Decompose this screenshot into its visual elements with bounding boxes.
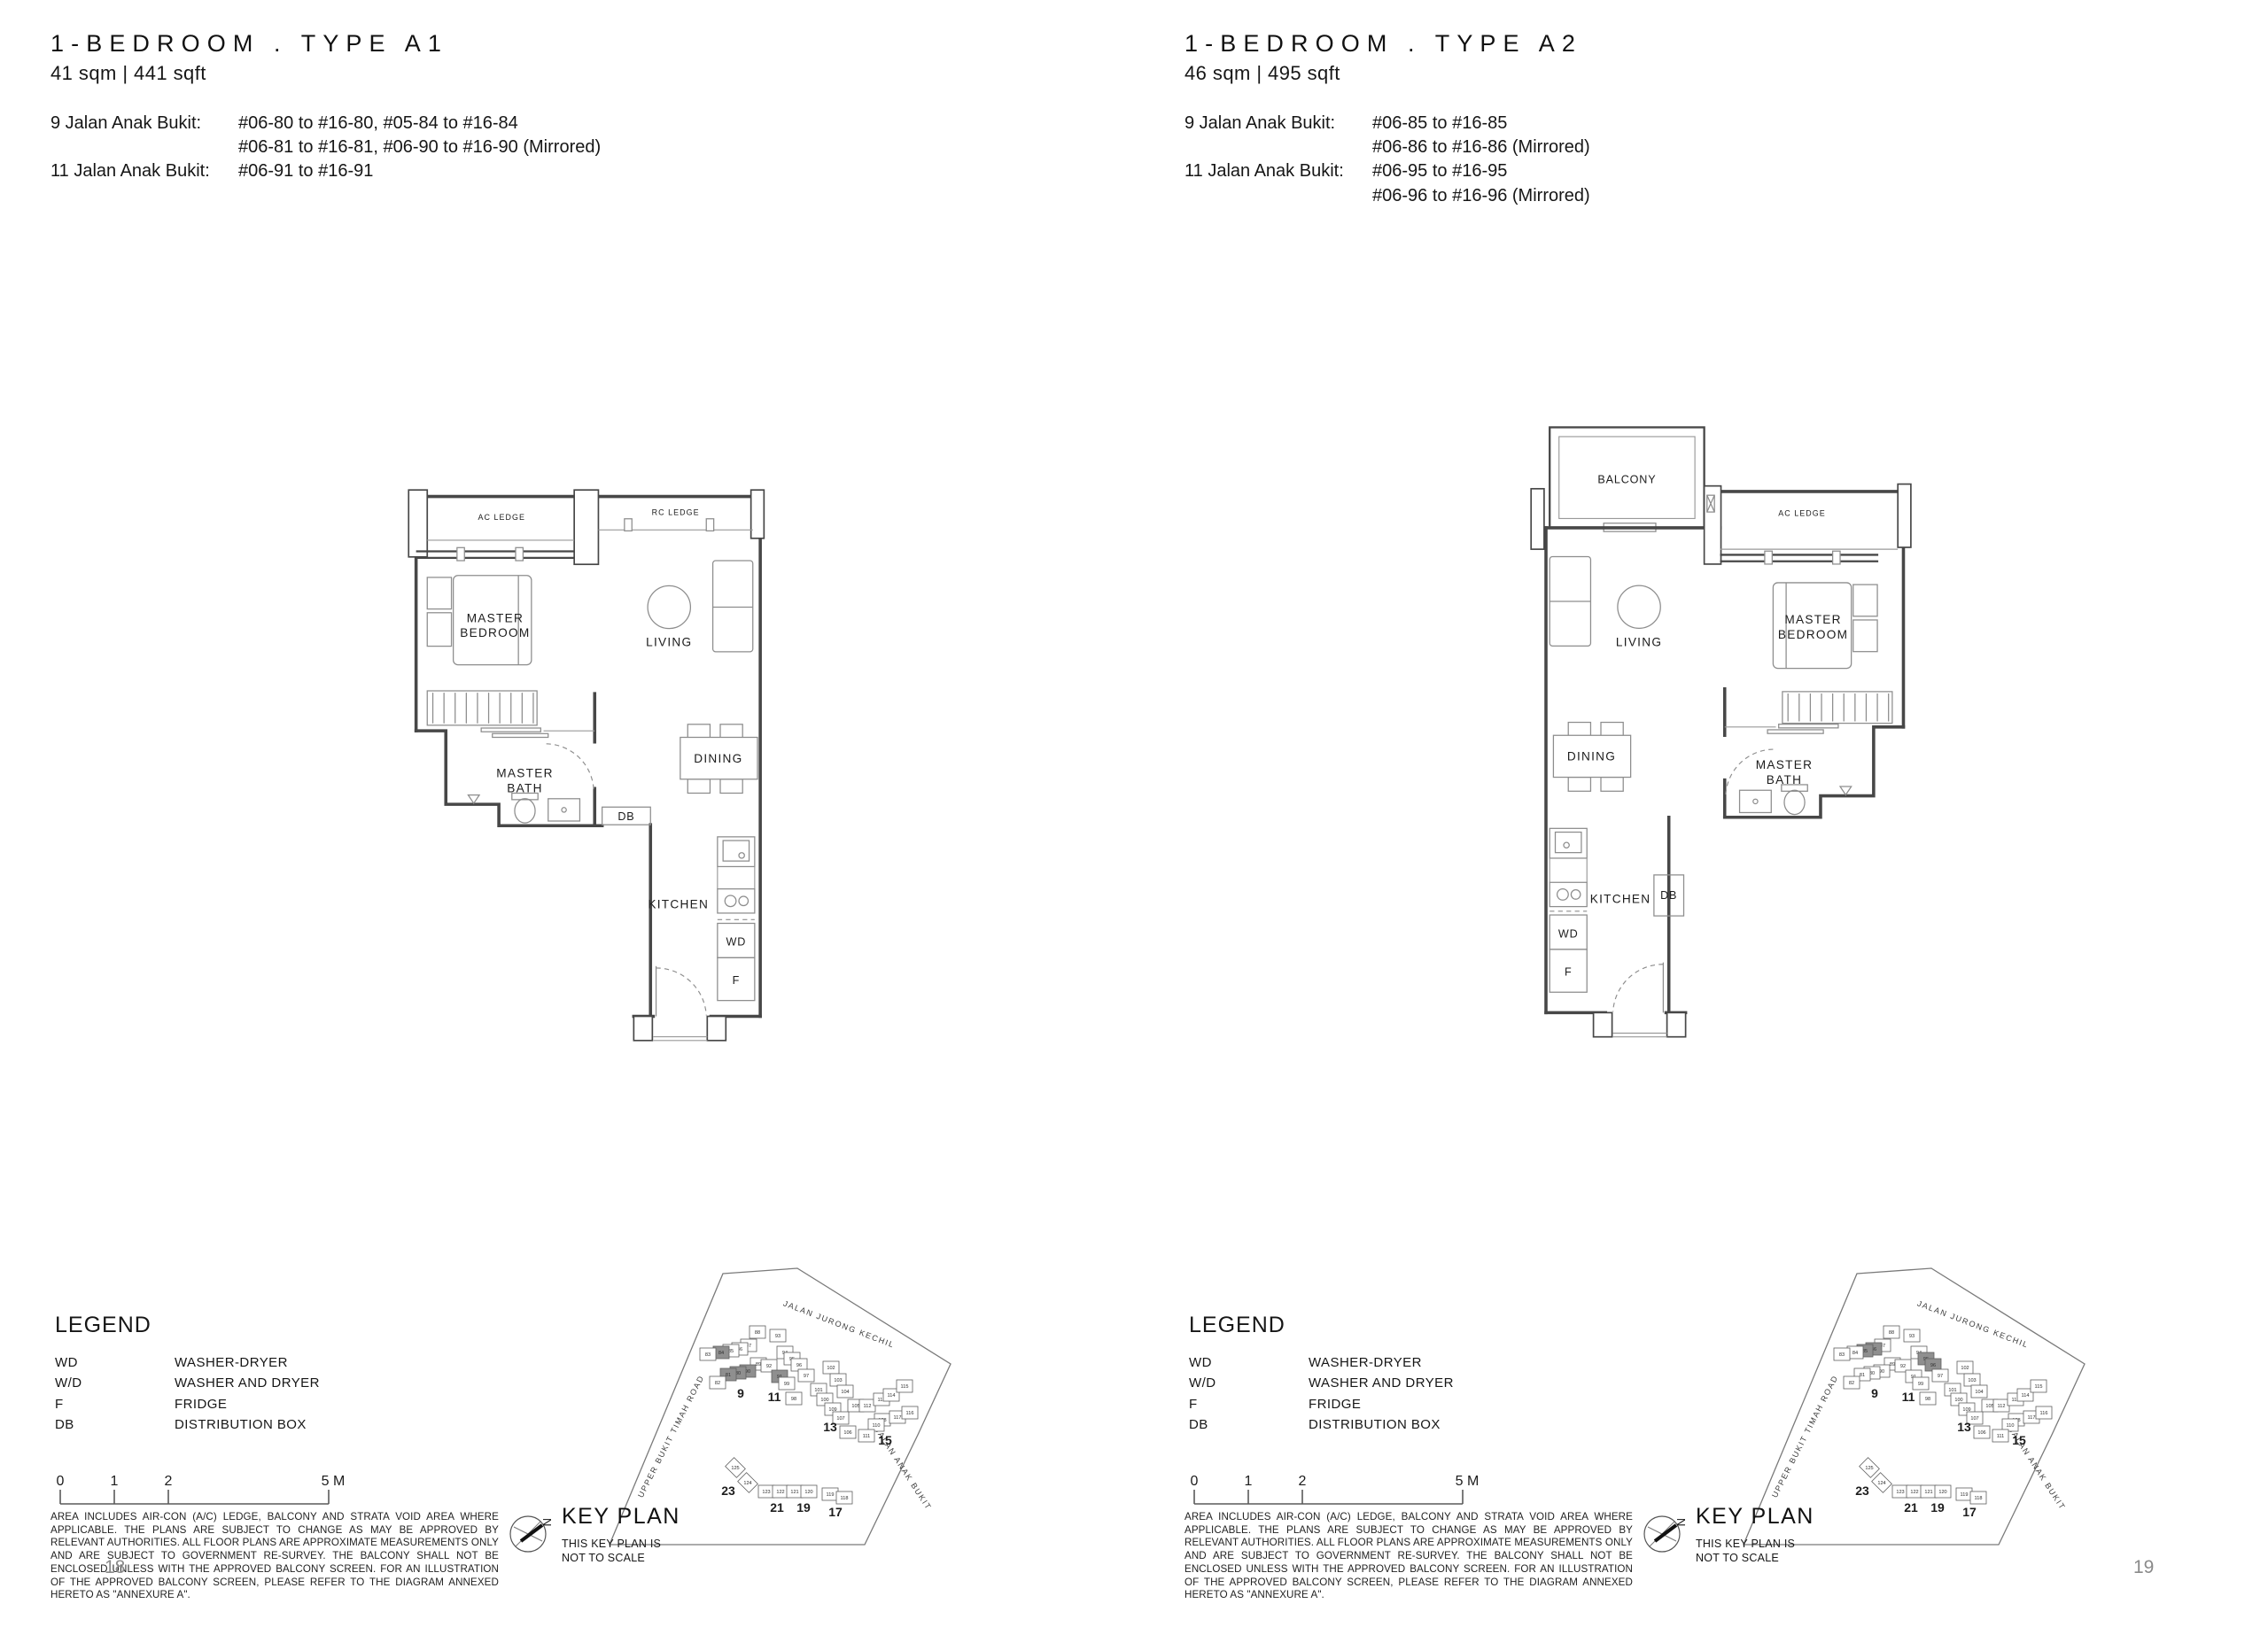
legend-abbr: W/D bbox=[55, 1373, 175, 1393]
keyplan-block-number: 15 bbox=[2012, 1433, 2026, 1447]
db-label: DB bbox=[617, 810, 634, 823]
scale-tick-label: 2 bbox=[165, 1474, 173, 1489]
keyplan-unit-number: 98 bbox=[1925, 1397, 1930, 1402]
disclaimer-text: AREA INCLUDES AIR-CON (A/C) LEDGE, BALCO… bbox=[1184, 1511, 1633, 1602]
keyplan-unit-number: 111 bbox=[863, 1434, 871, 1439]
north-label: N bbox=[540, 1518, 554, 1526]
keyplan-unit-number: 83 bbox=[1839, 1352, 1845, 1358]
keyplan-unit-number: 124 bbox=[1877, 1481, 1885, 1486]
address-value: #06-91 to #16-91 bbox=[238, 159, 373, 183]
keyplan-block-number: 11 bbox=[1902, 1390, 1915, 1404]
keyplan-block-number: 11 bbox=[768, 1390, 781, 1404]
dining-label: DINING bbox=[1567, 750, 1616, 763]
round-table-icon bbox=[1618, 585, 1660, 628]
keyplan-unit-number: 117 bbox=[2028, 1415, 2036, 1421]
keyplan-unit-number: 84 bbox=[1852, 1351, 1858, 1356]
legend-desc: DISTRIBUTION BOX bbox=[1309, 1414, 1441, 1435]
unit-title: 1-BEDROOM . TYPE A1 bbox=[50, 30, 724, 58]
keyplan-block-number: 19 bbox=[796, 1500, 811, 1515]
keyplan-unit-number: 112 bbox=[1998, 1404, 2006, 1409]
address-label: 11 Jalan Anak Bukit: bbox=[1184, 159, 1372, 183]
f-label: F bbox=[1565, 965, 1573, 978]
balcony-label: BALCONY bbox=[1597, 474, 1656, 486]
key-plan-note: THIS KEY PLAN IS NOT TO SCALE bbox=[1696, 1537, 1814, 1566]
db-box: DB bbox=[602, 807, 651, 825]
keyplan-unit-number: 82 bbox=[715, 1381, 720, 1386]
legend-desc: DISTRIBUTION BOX bbox=[175, 1414, 307, 1435]
keyplan-unit-number: 93 bbox=[775, 1334, 781, 1339]
road-label: JALAN JURONG KECHIL bbox=[1916, 1299, 2031, 1350]
unit-panel-a1: 1-BEDROOM . TYPE A1 41 sqm | 441 sqft 9 … bbox=[0, 0, 1134, 1627]
north-label: N bbox=[1674, 1518, 1688, 1526]
road-label: JALAN JURONG KECHIL bbox=[782, 1299, 897, 1350]
address-row: #06-96 to #16-96 (Mirrored) bbox=[1184, 184, 1858, 208]
keyplan-unit-number: 119 bbox=[1961, 1492, 1969, 1498]
legend-abbr: F bbox=[55, 1394, 175, 1414]
unit-area: 41 sqm | 441 sqft bbox=[50, 62, 724, 85]
scale-tick-label: 5 M bbox=[322, 1474, 346, 1489]
legend-row: W/D WASHER AND DRYER bbox=[55, 1373, 427, 1393]
keyplan-unit-number: 106 bbox=[1977, 1430, 1985, 1436]
key-plan-note: THIS KEY PLAN IS NOT TO SCALE bbox=[562, 1537, 680, 1566]
keyplan-block-number: 21 bbox=[1904, 1500, 1918, 1515]
entry-door bbox=[656, 966, 707, 1017]
dining: DINING bbox=[1553, 723, 1630, 792]
living: LIVING bbox=[1550, 557, 1662, 649]
address-row: #06-81 to #16-81, #06-90 to #16-90 (Mirr… bbox=[50, 136, 724, 159]
living: LIVING bbox=[646, 561, 753, 652]
master-bedroom: MASTER BEDROOM bbox=[1725, 583, 1892, 733]
keyplan-unit-number: 121 bbox=[790, 1490, 798, 1495]
keyplan-unit-number: 99 bbox=[1918, 1382, 1923, 1387]
keyplan-unit-number: 125 bbox=[1865, 1466, 1873, 1471]
scale-tick-label: 1 bbox=[111, 1474, 119, 1489]
legend-abbr: W/D bbox=[1189, 1373, 1309, 1393]
road-label: UPPER BUKIT TIMAH ROAD bbox=[636, 1374, 706, 1499]
keyplan-unit-number: 104 bbox=[841, 1390, 849, 1395]
address-row: 9 Jalan Anak Bukit: #06-85 to #16-85 bbox=[1184, 112, 1858, 136]
keyplan-unit-number: 110 bbox=[2007, 1423, 2015, 1429]
round-table-icon bbox=[648, 585, 690, 628]
keyplan-block-number: 17 bbox=[1962, 1505, 1977, 1519]
master-bedroom-label: BEDROOM bbox=[460, 626, 530, 639]
keyplan-unit-number: 97 bbox=[1938, 1374, 1943, 1379]
legend-desc: WASHER AND DRYER bbox=[1309, 1373, 1454, 1393]
scale-tick-label: 0 bbox=[1191, 1474, 1199, 1489]
address-value: #06-86 to #16-86 (Mirrored) bbox=[1372, 136, 1590, 159]
legend-row: F FRIDGE bbox=[55, 1394, 427, 1414]
legend-desc: FRIDGE bbox=[1309, 1394, 1361, 1414]
keyplan-unit-number: 122 bbox=[1910, 1490, 1918, 1495]
scale-tick-label: 1 bbox=[1245, 1474, 1253, 1489]
keyplan-unit-number: 107 bbox=[1970, 1416, 1978, 1422]
keyplan-unit-number: 123 bbox=[1896, 1490, 1904, 1495]
scale-tick-label: 5 M bbox=[1456, 1474, 1480, 1489]
address-value: #06-96 to #16-96 (Mirrored) bbox=[1372, 184, 1590, 208]
living-label: LIVING bbox=[646, 636, 692, 649]
key-plan-title: KEY PLAN bbox=[1696, 1504, 1814, 1530]
legend-abbr: WD bbox=[1189, 1352, 1309, 1373]
keyplan-unit-number: 110 bbox=[873, 1423, 881, 1429]
keyplan-unit-number: 82 bbox=[1849, 1381, 1854, 1386]
address-row: 9 Jalan Anak Bukit: #06-80 to #16-80, #0… bbox=[50, 112, 724, 136]
keyplan-unit-number: 115 bbox=[901, 1384, 909, 1390]
keyplan-unit-number: 103 bbox=[1968, 1378, 1976, 1383]
keyplan-unit-number: 100 bbox=[820, 1398, 828, 1403]
wd-label: WD bbox=[1558, 927, 1579, 940]
keyplan-unit-number: 111 bbox=[1997, 1434, 2005, 1439]
keyplan-unit-number: 102 bbox=[827, 1366, 835, 1371]
key-plan: JALAN JURONG KECHILUPPER BUKIT TIMAH ROA… bbox=[1627, 1226, 2247, 1620]
rc-ledge-label: RC LEDGE bbox=[652, 508, 700, 517]
keyplan-unit-number: 89 bbox=[756, 1362, 761, 1367]
living-label: LIVING bbox=[1616, 635, 1662, 648]
legend-title: LEGEND bbox=[1189, 1313, 1561, 1338]
keyplan-unit-number: 120 bbox=[1938, 1490, 1946, 1495]
shower-outlet-icon bbox=[468, 795, 479, 803]
keyplan-unit-number: 84 bbox=[718, 1351, 724, 1356]
keyplan-unit-number: 93 bbox=[1909, 1334, 1915, 1339]
legend-desc: WASHER-DRYER bbox=[175, 1352, 288, 1373]
keyplan-block-number: 21 bbox=[770, 1500, 784, 1515]
legend-row: F FRIDGE bbox=[1189, 1394, 1561, 1414]
keyplan-unit-number: 119 bbox=[827, 1492, 835, 1498]
master-bedroom-label: BEDROOM bbox=[1778, 628, 1848, 641]
rc-ledge: RC LEDGE bbox=[598, 508, 752, 531]
master-bath-label: MASTER bbox=[1756, 758, 1813, 771]
keyplan-unit-number: 106 bbox=[843, 1430, 851, 1436]
keyplan-unit-number: 96 bbox=[1930, 1363, 1936, 1368]
keyplan-unit-number: 88 bbox=[1889, 1330, 1894, 1336]
keyplan-unit-number: 81 bbox=[726, 1373, 731, 1378]
address-label: 9 Jalan Anak Bukit: bbox=[50, 112, 238, 136]
legend-row: WD WASHER-DRYER bbox=[55, 1352, 427, 1373]
keyplan-unit-number: 102 bbox=[1961, 1366, 1969, 1371]
keyplan-unit-number: 124 bbox=[743, 1481, 751, 1486]
legend-title: LEGEND bbox=[55, 1313, 427, 1338]
floorplan-brochure-page: 1-BEDROOM . TYPE A1 41 sqm | 441 sqft 9 … bbox=[0, 0, 2268, 1627]
keyplan-unit-number: 88 bbox=[755, 1330, 760, 1336]
address-row: 11 Jalan Anak Bukit: #06-95 to #16-95 bbox=[1184, 159, 1858, 183]
kitchen: KITCHEN WD F bbox=[648, 837, 754, 1001]
scale-tick-label: 0 bbox=[57, 1474, 65, 1489]
keyplan-unit-number: 83 bbox=[705, 1352, 711, 1358]
key-plan-header: KEY PLAN THIS KEY PLAN IS NOT TO SCALE bbox=[562, 1504, 680, 1566]
basin-icon bbox=[548, 799, 580, 821]
address-label bbox=[1184, 136, 1372, 159]
legend-abbr: WD bbox=[55, 1352, 175, 1373]
master-bath-label: MASTER bbox=[496, 767, 553, 780]
keyplan-unit-number: 107 bbox=[836, 1416, 844, 1422]
keyplan-unit-number: 100 bbox=[1954, 1398, 1962, 1403]
master-bedroom: MASTER BEDROOM bbox=[427, 576, 594, 738]
key-plan-header: KEY PLAN THIS KEY PLAN IS NOT TO SCALE bbox=[1696, 1504, 1814, 1566]
legend: LEGEND WD WASHER-DRYER W/D WASHER AND DR… bbox=[55, 1313, 427, 1435]
keyplan-unit-number: 105 bbox=[1985, 1404, 1993, 1409]
address-value: #06-95 to #16-95 bbox=[1372, 159, 1507, 183]
db-label: DB bbox=[1660, 889, 1677, 902]
north-compass-icon: N bbox=[1639, 1506, 1692, 1559]
keyplan-block-number: 23 bbox=[721, 1484, 735, 1498]
keyplan-block-number: 13 bbox=[823, 1420, 837, 1434]
unit-panel-a2: 1-BEDROOM . TYPE A2 46 sqm | 495 sqft 9 … bbox=[1134, 0, 2268, 1627]
legend-row: W/D WASHER AND DRYER bbox=[1189, 1373, 1561, 1393]
basin-icon bbox=[1740, 790, 1772, 812]
sofa-icon bbox=[713, 561, 753, 652]
address-label bbox=[50, 136, 238, 159]
keyplan-block-number: 17 bbox=[828, 1505, 843, 1519]
legend-abbr: DB bbox=[55, 1414, 175, 1435]
keyplan-block-number: 23 bbox=[1855, 1484, 1869, 1498]
master-bedroom-label: MASTER bbox=[1784, 613, 1841, 626]
keyplan-unit-number: 101 bbox=[1948, 1388, 1956, 1393]
keyplan-unit-number: 118 bbox=[841, 1496, 849, 1501]
scale-bar: 0 1 2 5 M bbox=[1187, 1472, 1506, 1507]
keyplan-unit-number: 118 bbox=[1975, 1496, 1983, 1501]
scale-tick-label: 2 bbox=[1299, 1474, 1307, 1489]
wd-label: WD bbox=[726, 936, 747, 949]
master-bath: MASTER BATH bbox=[1726, 749, 1852, 815]
legend-desc: WASHER AND DRYER bbox=[175, 1373, 320, 1393]
scale-bar: 0 1 2 5 M bbox=[53, 1472, 372, 1507]
unit-addresses: 9 Jalan Anak Bukit: #06-85 to #16-85 #06… bbox=[1184, 112, 1858, 208]
road-label: UPPER BUKIT TIMAH ROAD bbox=[1770, 1374, 1840, 1499]
ac-ledge: AC LEDGE bbox=[1720, 508, 1898, 564]
north-compass-icon: N bbox=[505, 1506, 558, 1559]
legend-row: WD WASHER-DRYER bbox=[1189, 1352, 1561, 1373]
ac-ledge: AC LEDGE bbox=[416, 513, 575, 561]
legend-row: DB DISTRIBUTION BOX bbox=[55, 1414, 427, 1435]
address-value: #06-81 to #16-81, #06-90 to #16-90 (Mirr… bbox=[238, 136, 601, 159]
keyplan-unit-number: 123 bbox=[762, 1490, 770, 1495]
address-label: 11 Jalan Anak Bukit: bbox=[50, 159, 238, 183]
address-row: 11 Jalan Anak Bukit: #06-91 to #16-91 bbox=[50, 159, 724, 183]
legend-desc: FRIDGE bbox=[175, 1394, 227, 1414]
keyplan-unit-number: 98 bbox=[791, 1397, 796, 1402]
master-bedroom-label: MASTER bbox=[467, 611, 524, 624]
keyplan-unit-number: 99 bbox=[784, 1382, 789, 1387]
keyplan-block-number: 9 bbox=[1871, 1386, 1878, 1400]
keyplan-unit-number: 101 bbox=[814, 1388, 822, 1393]
unit-header: 1-BEDROOM . TYPE A2 46 sqm | 495 sqft 9 … bbox=[1184, 30, 1858, 208]
sliding-door-icon bbox=[1767, 730, 1823, 733]
unit-addresses: 9 Jalan Anak Bukit: #06-80 to #16-80, #0… bbox=[50, 112, 724, 184]
keyplan-unit-number: 96 bbox=[796, 1363, 802, 1368]
f-label: F bbox=[733, 974, 741, 987]
keyplan-block-number: 13 bbox=[1957, 1420, 1971, 1434]
keyplan-block-number: 9 bbox=[737, 1386, 744, 1400]
dining: DINING bbox=[680, 724, 757, 794]
keyplan-unit-number: 117 bbox=[894, 1415, 902, 1421]
keyplan-unit-number: 112 bbox=[864, 1404, 872, 1409]
key-plan: JALAN JURONG KECHILUPPER BUKIT TIMAH ROA… bbox=[493, 1226, 1113, 1620]
address-label bbox=[1184, 184, 1372, 208]
keyplan-unit-number: 121 bbox=[1924, 1490, 1932, 1495]
master-bath: MASTER BATH bbox=[468, 744, 594, 823]
sliding-door-icon bbox=[1779, 724, 1838, 728]
unit-header: 1-BEDROOM . TYPE A1 41 sqm | 441 sqft 9 … bbox=[50, 30, 724, 184]
legend: LEGEND WD WASHER-DRYER W/D WASHER AND DR… bbox=[1189, 1313, 1561, 1435]
address-label: 9 Jalan Anak Bukit: bbox=[1184, 112, 1372, 136]
keyplan-block-number: 15 bbox=[878, 1433, 892, 1447]
page-number: 18 bbox=[105, 1557, 125, 1578]
shower-outlet-icon bbox=[1840, 786, 1852, 794]
keyplan-unit-number: 120 bbox=[804, 1490, 812, 1495]
unit-title: 1-BEDROOM . TYPE A2 bbox=[1184, 30, 1858, 58]
key-plan-title: KEY PLAN bbox=[562, 1504, 680, 1530]
keyplan-unit-number: 97 bbox=[804, 1374, 809, 1379]
sliding-door-icon bbox=[481, 728, 540, 732]
keyplan-unit-number: 81 bbox=[1860, 1373, 1865, 1378]
unit-area: 46 sqm | 495 sqft bbox=[1184, 62, 1858, 85]
floor-plan-a1: AC LEDGE RC LEDGE MASTER BEDROOM bbox=[390, 468, 790, 1044]
ac-ledge-label: AC LEDGE bbox=[1778, 508, 1826, 517]
floor-plan-a2: BALCONY bbox=[1529, 400, 1930, 1042]
dining-label: DINING bbox=[694, 752, 742, 765]
keyplan-unit-number: 114 bbox=[2022, 1393, 2030, 1398]
keyplan-unit-number: 103 bbox=[834, 1378, 842, 1383]
entry-door bbox=[1613, 963, 1664, 1013]
kitchen-label: KITCHEN bbox=[1590, 892, 1651, 905]
ac-ledge-label: AC LEDGE bbox=[478, 513, 525, 522]
keyplan-unit-number: 116 bbox=[2040, 1411, 2048, 1416]
keyplan-block-number: 19 bbox=[1930, 1500, 1945, 1515]
legend-desc: WASHER-DRYER bbox=[1309, 1352, 1422, 1373]
kitchen-label: KITCHEN bbox=[648, 898, 709, 911]
keyplan-unit-number: 105 bbox=[851, 1404, 859, 1409]
keyplan-unit-number: 122 bbox=[776, 1490, 784, 1495]
sliding-door-icon bbox=[493, 733, 548, 737]
keyplan-unit-number: 92 bbox=[1900, 1364, 1906, 1369]
address-value: #06-85 to #16-85 bbox=[1372, 112, 1507, 136]
legend-abbr: F bbox=[1189, 1394, 1309, 1414]
balcony: BALCONY bbox=[1550, 427, 1704, 531]
address-value: #06-80 to #16-80, #05-84 to #16-84 bbox=[238, 112, 518, 136]
keyplan-unit-number: 115 bbox=[2035, 1384, 2043, 1390]
legend-abbr: DB bbox=[1189, 1414, 1309, 1435]
keyplan-unit-number: 114 bbox=[888, 1393, 896, 1398]
keyplan-unit-number: 89 bbox=[1890, 1362, 1895, 1367]
keyplan-unit-number: 92 bbox=[766, 1364, 772, 1369]
keyplan-unit-number: 125 bbox=[731, 1466, 739, 1471]
keyplan-unit-number: 116 bbox=[906, 1411, 914, 1416]
legend-row: DB DISTRIBUTION BOX bbox=[1189, 1414, 1561, 1435]
address-row: #06-86 to #16-86 (Mirrored) bbox=[1184, 136, 1858, 159]
keyplan-unit-number: 104 bbox=[1975, 1390, 1983, 1395]
kitchen: KITCHEN WD F bbox=[1550, 828, 1651, 992]
